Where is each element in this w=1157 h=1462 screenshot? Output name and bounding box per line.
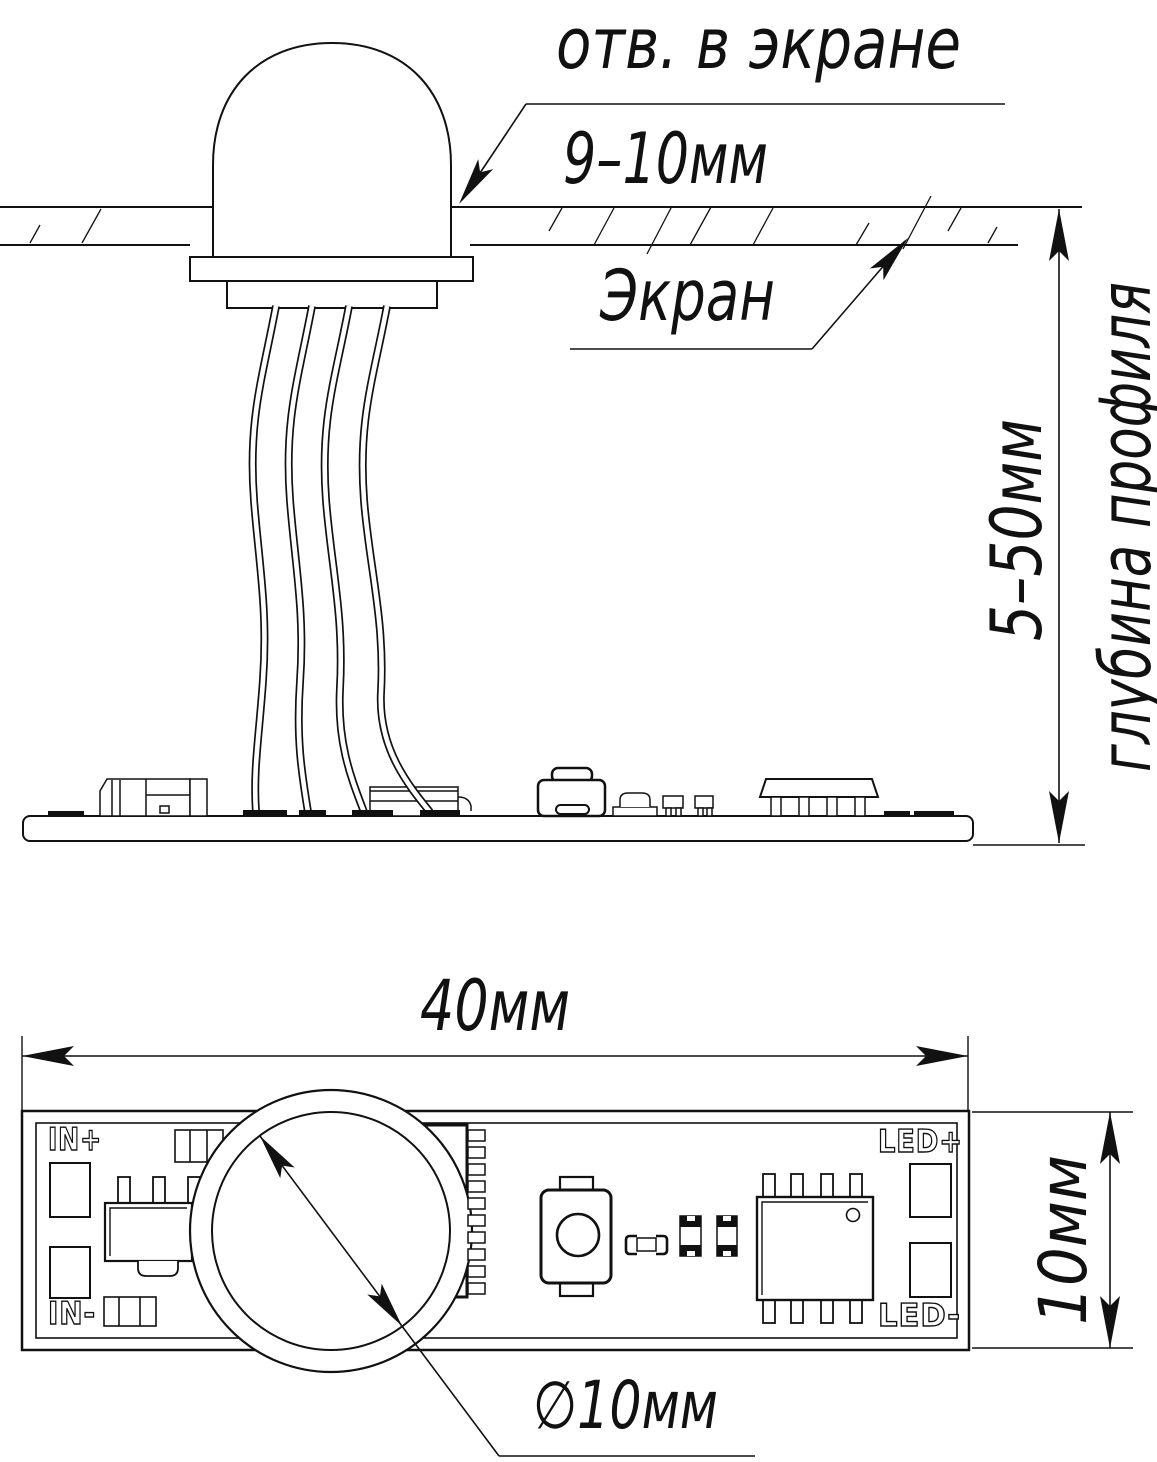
screen-panel (0, 196, 1082, 254)
led-wires (253, 306, 430, 812)
pad-in-minus (50, 1247, 90, 1298)
pad-led-plus (910, 1164, 951, 1217)
drawing-canvas: отв. в экране 9–10мм Экран 5–50мм глубин… (0, 0, 1157, 1462)
dim-depth: 5–50мм глубина профиля (973, 209, 1157, 845)
hole-size-label: 9–10мм (563, 118, 768, 200)
side-view (0, 43, 1082, 841)
dim-width: 40мм (22, 965, 968, 1111)
soic-chip-side (760, 779, 878, 816)
top-view: IN+ IN- LED+ LED- (22, 1090, 969, 1372)
label-in-minus: IN- (48, 1296, 96, 1332)
pcb-side (23, 768, 973, 841)
terminal-connector-side (100, 779, 207, 816)
label-led-minus: LED- (878, 1298, 961, 1334)
pad-in-plus (50, 1163, 90, 1217)
screen-label: Экран (599, 255, 775, 337)
soic8-chip-top (757, 1174, 873, 1323)
touch-button-side (538, 768, 605, 816)
led-base (227, 281, 437, 308)
engineering-drawing-sheet: отв. в экране 9–10мм Экран 5–50мм глубин… (0, 0, 1157, 1462)
pad-led-minus (910, 1243, 951, 1297)
hole-callout-arrow (452, 159, 494, 209)
dim-height: 10мм (972, 1112, 1133, 1348)
callout-screen: Экран (570, 232, 915, 349)
small-components-side (613, 793, 713, 816)
board-width-label: 40мм (420, 965, 570, 1047)
smd-capacitor-1 (680, 1216, 701, 1256)
board-height-label: 10мм (1025, 1155, 1102, 1325)
depth-note-label: глубина профиля (1085, 282, 1157, 772)
label-in-plus: IN+ (48, 1122, 102, 1158)
hole-note-label: отв. в экране (556, 3, 961, 85)
pcb-board-side (23, 816, 973, 841)
label-led-plus: LED+ (878, 1124, 963, 1160)
led-lamp (190, 43, 473, 308)
smd-capacitor-2 (717, 1216, 737, 1256)
touch-button-top (541, 1177, 611, 1296)
led-flange (190, 257, 473, 281)
depth-range-label: 5–50мм (976, 419, 1058, 641)
led-dome (213, 43, 451, 257)
pin1-dot (847, 1209, 860, 1222)
diameter-label: ∅10мм (533, 1367, 718, 1444)
smd-resistor-bottom-left (104, 1297, 156, 1326)
callout-hole: отв. в экране 9–10мм (452, 3, 1005, 209)
